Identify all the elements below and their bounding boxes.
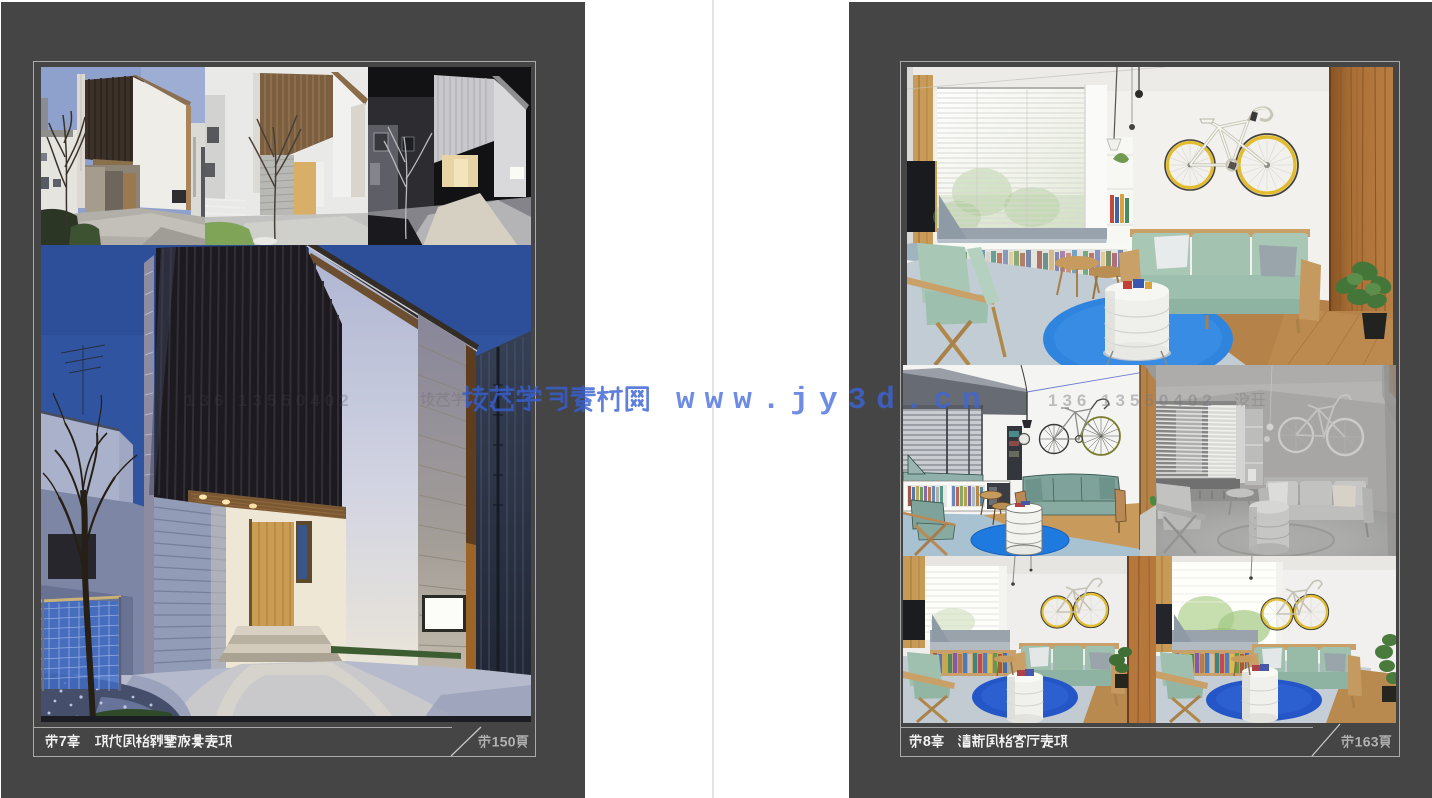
svg-text:8: 8 <box>923 734 931 750</box>
svg-text:5: 5 <box>500 733 508 749</box>
svg-text:7: 7 <box>59 734 67 750</box>
svg-text:1: 1 <box>1355 733 1363 749</box>
svg-text:6: 6 <box>1363 733 1371 749</box>
svg-text:0: 0 <box>508 733 516 749</box>
svg-text:3: 3 <box>1371 733 1379 749</box>
svg-text:1: 1 <box>492 733 500 749</box>
